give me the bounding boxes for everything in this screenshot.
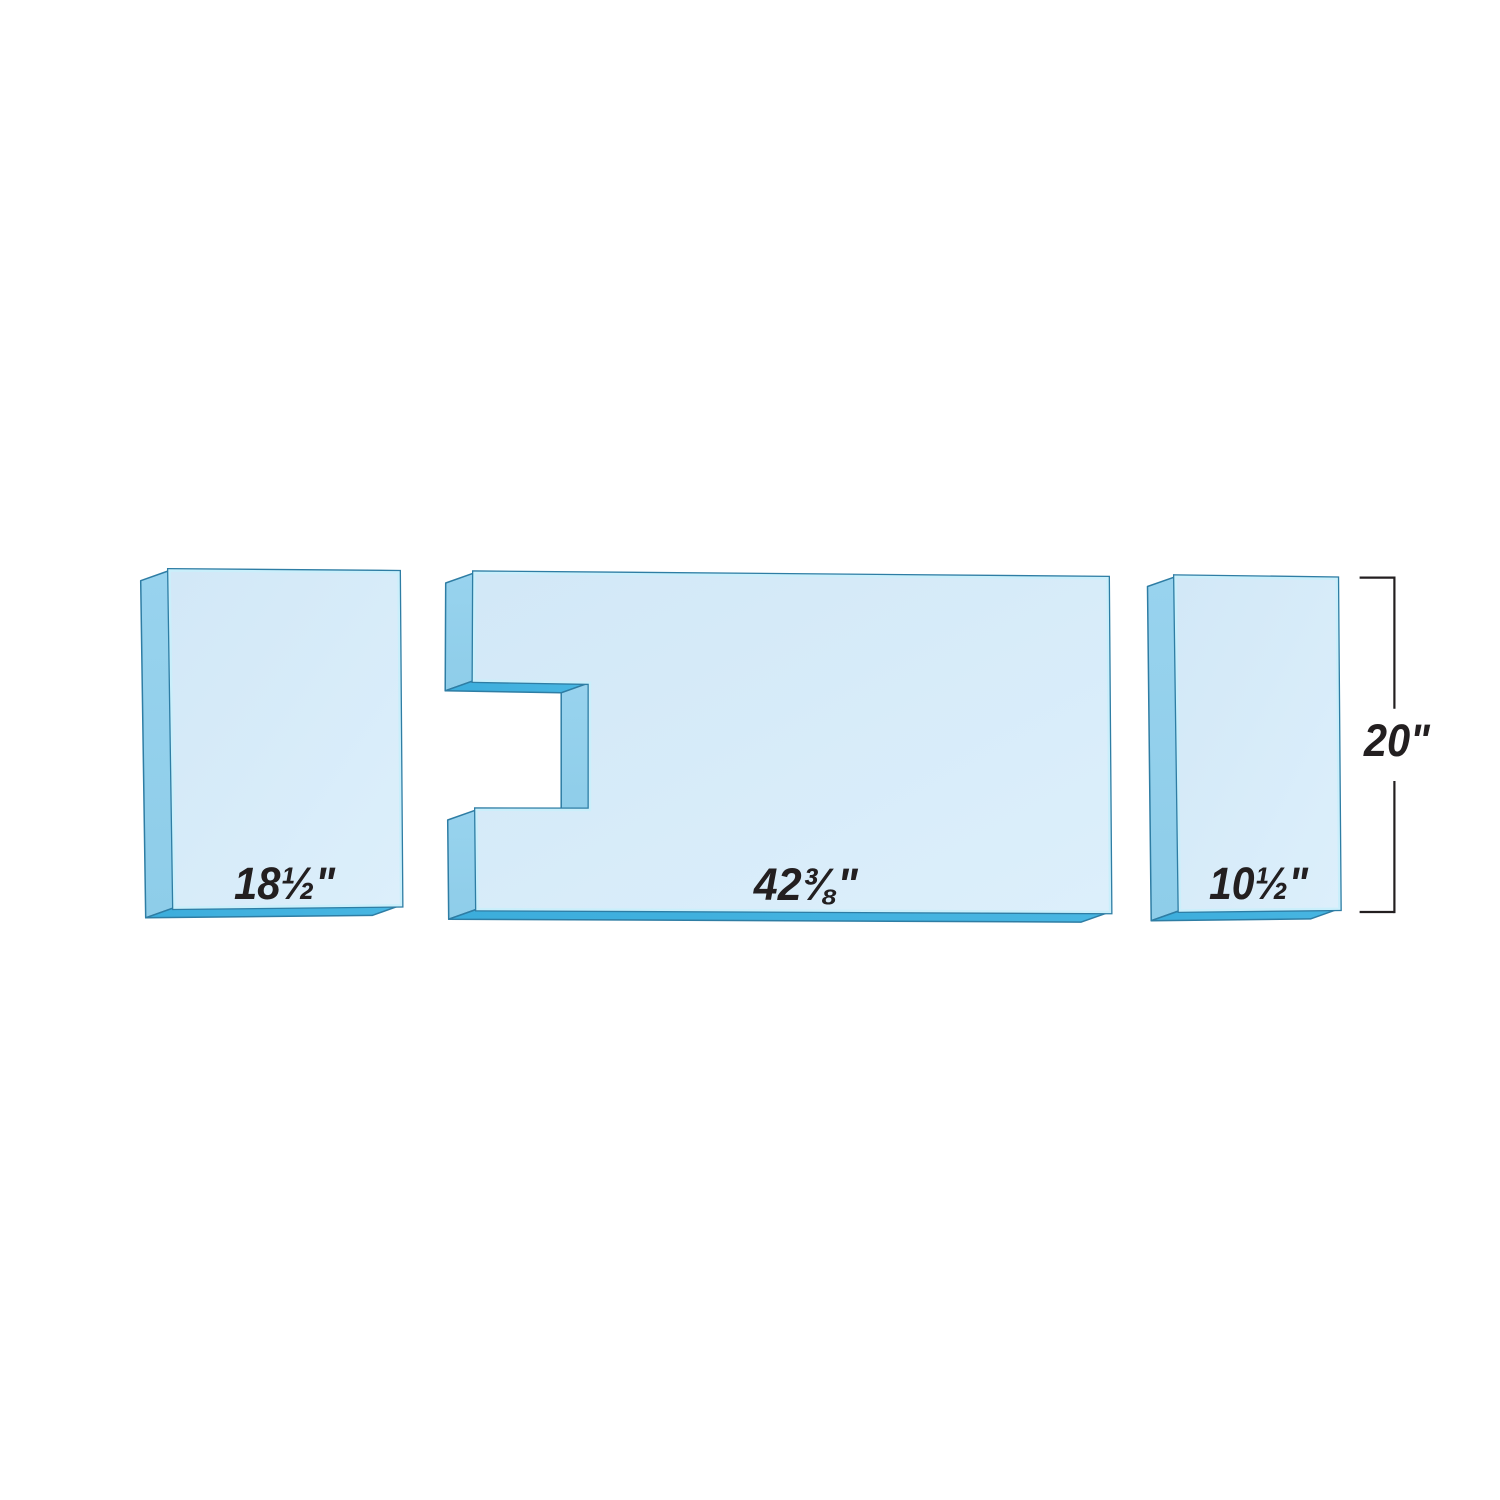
svg-text:10½": 10½" <box>1209 858 1309 909</box>
svg-text:18½": 18½" <box>234 858 336 909</box>
svg-text:42⅜": 42⅜" <box>753 859 859 910</box>
svg-text:20": 20" <box>1363 715 1431 766</box>
